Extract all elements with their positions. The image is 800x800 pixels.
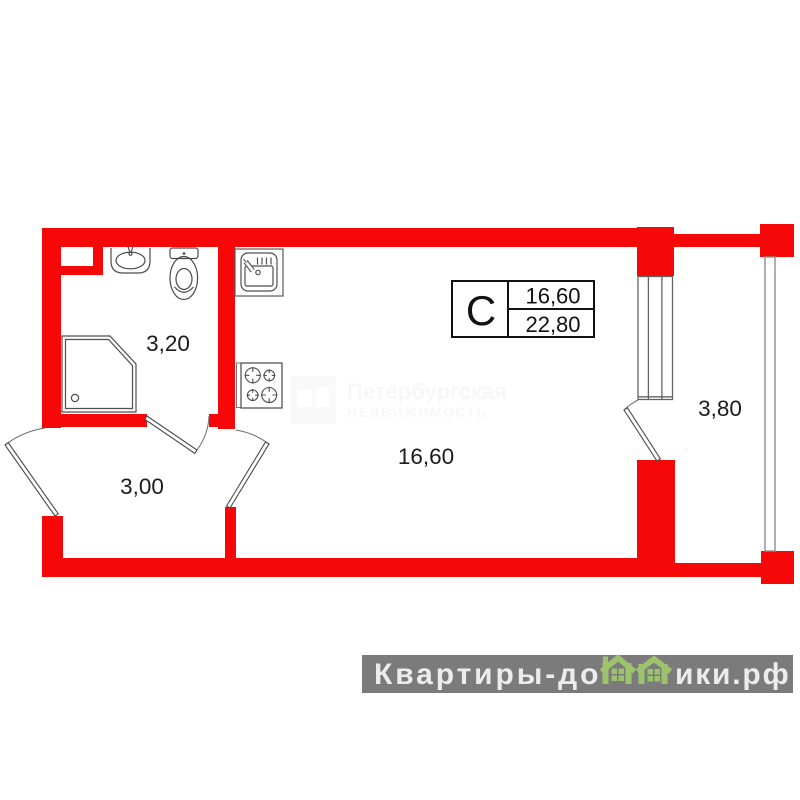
svg-text:С: С	[466, 287, 496, 334]
svg-text:16,60: 16,60	[398, 444, 454, 469]
svg-text:3,00: 3,00	[120, 474, 164, 499]
svg-text:3,80: 3,80	[698, 396, 742, 421]
svg-text:22,80: 22,80	[525, 312, 580, 337]
svg-text:16,60: 16,60	[525, 284, 580, 309]
svg-text:3,20: 3,20	[146, 331, 190, 356]
svg-text:ики.рф: ики.рф	[675, 658, 791, 691]
svg-text:Петербургская: Петербургская	[347, 379, 507, 404]
svg-text:НЕДВИЖИМОСТЬ: НЕДВИЖИМОСТЬ	[347, 404, 488, 420]
svg-text:Квартиры-до: Квартиры-до	[374, 658, 601, 691]
